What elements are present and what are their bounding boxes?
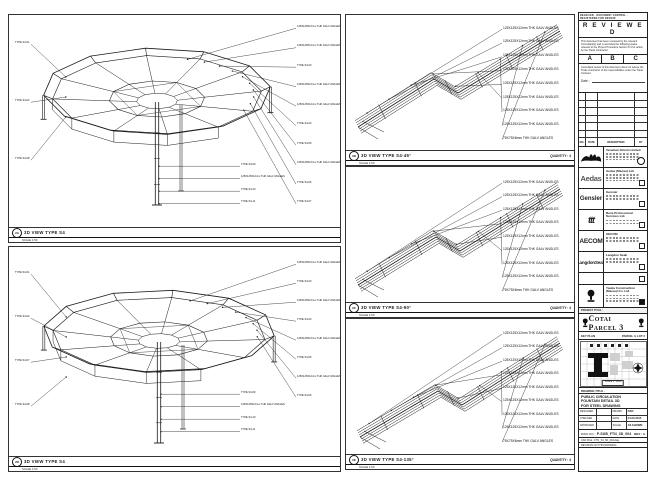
- revision-cell: [635, 131, 647, 139]
- callout-label: 125X125X12mm THK GALV ANGLES: [503, 332, 572, 336]
- trophy-icon: [579, 285, 604, 307]
- stakeholder-info: Aedas (Macau) Ltd.: [604, 168, 647, 188]
- review-checkbox: [639, 201, 646, 208]
- signoff-cell: -: [597, 409, 612, 416]
- reviewed-body-text: This document has been reviewed by the r…: [579, 38, 647, 54]
- panel-label-bar: 2C 3D VIEW TYPE S4-90° QUANTITY : 4 SCAL…: [346, 302, 574, 317]
- project-name: Cotai Parcel 3: [589, 314, 638, 332]
- callout-label: 125X125X12mm THK GALV ANGLES: [503, 96, 572, 100]
- callout-label: 125X125X12mm THK GALV ANGLES: [241, 404, 285, 407]
- callout-label: TYPE S4-11: [241, 429, 255, 432]
- panel-3d-view-s4-top: 125X125X12mm THK GALV ANGLES125X125X12mm…: [8, 14, 341, 243]
- scale-note: SCALE 1:50: [346, 313, 574, 317]
- review-checkbox: [639, 222, 646, 229]
- stakeholder-info: Gensler: [604, 189, 647, 209]
- stakeholder-row: LangdonSeahLangdon Seah: [579, 252, 647, 273]
- revision-value: REV : A: [634, 432, 645, 436]
- view-title: 3D VIEW TYPE S4-45°: [361, 153, 411, 158]
- grade-a: A: [579, 55, 602, 63]
- callout-label: TYPE S4-07: [297, 201, 339, 204]
- revision-cell: [598, 116, 635, 124]
- revision-cell: [598, 93, 635, 101]
- callout-label: 125X125X12mm THK GALV ANGLES: [503, 54, 572, 58]
- callout-label: TYPE S4-01: [15, 42, 29, 45]
- panel-3d-view-s4-90: 125X125X12mm THK GALV ANGLES125X125X12mm…: [345, 166, 575, 318]
- stakeholder-row: [579, 273, 647, 285]
- detail-bubble: 2A: [12, 228, 22, 238]
- callout-label: 125X125X12mm THK GALV ANGLES: [503, 386, 572, 390]
- address-microtext: [606, 220, 640, 222]
- stakeholder-row: Yauka Construction (Macau) Co. Ltd.: [579, 285, 647, 308]
- callout-label: TYPE S4-07: [15, 360, 29, 363]
- revision-footer-cell: DESCRIPTION: [598, 138, 635, 146]
- panel-3d-view-s4-45: 125X125X12mm THK GALV ANGLES125X125X12mm…: [345, 14, 575, 166]
- stamp-circle: [637, 157, 645, 165]
- ttt-logo: ttt: [579, 210, 604, 230]
- revision-cell: [635, 108, 647, 116]
- revision-cell: [579, 131, 586, 139]
- gensler-logo: Gensler: [579, 189, 604, 209]
- callout-label: 125X125X12mm THK GALV ANGLES: [503, 109, 572, 113]
- signoff-cell: SCALE: [612, 422, 627, 429]
- panel-label-bar: 2A 3D VIEW TYPE S4 SCALE 1:50: [9, 227, 340, 242]
- scale-note: SCALE 1:50: [9, 467, 340, 471]
- review-checkbox: [639, 276, 646, 283]
- logo-text: Gensler: [580, 196, 602, 202]
- signoff-table: DESIGNED-DRAWNDADCHECKED-DATE04-03-2015A…: [579, 409, 647, 430]
- revision-cell: [579, 101, 586, 109]
- address-microtext: [606, 153, 640, 155]
- signoff-cell: AS SHOWN: [627, 422, 647, 429]
- reviewed-note-text: Consultant review of this document does …: [579, 64, 647, 77]
- review-date-row: Date :: [579, 77, 647, 85]
- revision-cell: [586, 116, 598, 124]
- callout-label: 125X125X12mm THK GALV ANGLES: [297, 45, 339, 48]
- stakeholder-name: Aedas (Macau) Ltd.: [606, 170, 646, 174]
- callout-label: 125X125X12mm THK GALV ANGLES: [503, 345, 572, 349]
- callout-label: TYPE S4-05: [297, 357, 339, 360]
- review-checkbox: [639, 180, 646, 187]
- callout-label: TYPE S4-09: [241, 392, 255, 395]
- panel-label-bar: 2E 3D VIEW TYPE S4-135° QUANTITY : 4 SCA…: [346, 454, 574, 469]
- detail-bubble: 2B: [349, 151, 359, 161]
- stakeholder-row: AECOMAECOM: [579, 231, 647, 252]
- callout-label: TYPE S4-02: [15, 316, 29, 319]
- callout-label: 125X125X12mm THK GALV ANGLES: [503, 235, 572, 239]
- callout-label: 125X125X12mm THK GALV ANGLES: [503, 248, 572, 252]
- revision-cell: [586, 131, 598, 139]
- stakeholder-row: AedasAedas (Macau) Ltd.: [579, 168, 647, 189]
- revision-cell: [598, 101, 635, 109]
- venetian-lion-icon: [579, 147, 604, 167]
- view-title: 3D VIEW TYPE S4: [24, 230, 65, 235]
- panel-3d-view-s4-135: 125X125X12mm THK GALV ANGLES125X125X12mm…: [345, 318, 575, 470]
- callout-label: 125X125X12mm THK GALV ANGLES: [503, 27, 572, 31]
- view-title: 3D VIEW TYPE S4-135°: [361, 457, 414, 462]
- grade-c: C: [624, 55, 647, 63]
- callout-label: 125X125X12mm THK GALV ANGLES: [297, 262, 339, 265]
- revision-table: NO.DATEDESCRIPTIONBY: [579, 93, 647, 147]
- review-checkbox: [639, 243, 646, 250]
- date-line: [592, 78, 645, 83]
- address-microtext: [606, 261, 640, 263]
- stakeholder-info: Langdon Seah: [604, 252, 647, 272]
- scale-note: SCALE 1:50: [9, 238, 340, 242]
- logo-text: LangdonSeah: [579, 260, 604, 265]
- quantity-note: QUANTITY : 4: [550, 458, 571, 462]
- stakeholder-list: Venetian Orient LimitedAedasAedas (Macau…: [579, 147, 647, 308]
- revision-cell: [635, 116, 647, 124]
- revision-cell: [579, 108, 586, 116]
- callout-label: 125X125X12mm THK GALV ANGLES: [503, 359, 572, 363]
- callout-label: TYPE S4-06: [297, 182, 339, 185]
- angle-bundle-figure: 125X125X12mm THK GALV ANGLES125X125X12mm…: [346, 15, 574, 150]
- logo-text: Aedas: [580, 174, 601, 183]
- langdonseah-logo: LangdonSeah: [579, 252, 604, 272]
- revision-cell: [579, 116, 586, 124]
- revision-cell: [579, 123, 586, 131]
- callout-label: TYPE S4-06: [297, 395, 339, 398]
- callout-label: TYPE S4-02: [15, 100, 29, 103]
- key-plan-parcel-note: PARCEL 3, LOT 2: [622, 334, 645, 338]
- detail-bubble: 2C: [349, 303, 359, 313]
- review-grade-boxes: A B C: [579, 54, 647, 64]
- address-microtext: [606, 159, 640, 161]
- view-title: 3D VIEW TYPE S4: [24, 459, 65, 464]
- callout-label: 125X125X12mm THK GALV ANGLES: [503, 426, 572, 430]
- key-plan-label: KEY PLAN: [581, 334, 595, 338]
- callout-label: TYPE S4-04: [297, 319, 339, 322]
- address-microtext: [606, 237, 640, 239]
- callout-label: TYPE S4-01: [15, 272, 29, 275]
- revision-footer-cell: NO.: [579, 138, 586, 146]
- title-block-column: RECEIVED · DOCUMENT CONTROL · REGISTERED…: [578, 12, 648, 472]
- compass-icon: [633, 363, 643, 373]
- address-microtext: [606, 174, 640, 176]
- stakeholder-row: Venetian Orient Limited: [579, 147, 647, 168]
- callout-label: 125X125X12mm THK GALV ANGLES: [503, 399, 572, 403]
- quantity-note: QUANTITY : 4: [550, 306, 571, 310]
- callout-label: 125X125X12mm THK GALV ANGLES: [297, 338, 339, 341]
- callout-label: TYPE S4-04: [297, 123, 339, 126]
- stakeholder-name: Yauka Construction (Macau) Co. Ltd.: [606, 287, 646, 294]
- address-microtext: [606, 258, 640, 260]
- address-microtext: [606, 156, 640, 158]
- dwg-no-value: P-SUB_FTN_3D_004: [597, 432, 631, 436]
- callout-label: TYPE S4-05: [297, 143, 339, 146]
- address-microtext: [606, 300, 640, 302]
- grade-b: B: [602, 55, 625, 63]
- callout-label: 125X125X12mm THK GALV ANGLES: [503, 221, 572, 225]
- callout-label: 125X125X12mm THK GALV ANGLES: [503, 262, 572, 266]
- address-microtext: [606, 240, 640, 242]
- callout-label: 125X125X12mm THK GALV ANGLES: [503, 40, 572, 44]
- stakeholder-row: GenslerGensler: [579, 189, 647, 210]
- logo-text: AECOM: [579, 238, 602, 245]
- signoff-cell: DESIGNED: [579, 409, 597, 416]
- contractor-mark: [639, 299, 646, 306]
- signoff-cell: -: [597, 416, 612, 423]
- stakeholder-info: Beca Professional Services Ltd.: [604, 210, 647, 230]
- revision-cell: [598, 108, 635, 116]
- callout-label: 125X125X12mm THK GALV ANGLES: [503, 123, 572, 127]
- callout-label: 125X125X12mm THK GALV ANGLES: [503, 82, 572, 86]
- project-banner: Cotai Parcel 3: [579, 314, 647, 332]
- key-plan-header: KEY PLAN PARCEL 3, LOT 2: [579, 332, 647, 340]
- stakeholder-name: Beca Professional Services Ltd.: [606, 212, 646, 219]
- revision-cell: [635, 123, 647, 131]
- stakeholder-info: [604, 273, 647, 284]
- address-microtext: [606, 177, 640, 179]
- callout-label: TYPE S4-10: [241, 417, 255, 420]
- callout-label: 125X125X12mm THK GALV ANGLES: [503, 413, 572, 417]
- revision-cell: [598, 123, 635, 131]
- callout-label: TYPE S4-10: [241, 189, 255, 192]
- reviewed-stamp: R E V I E W E D This document has been r…: [579, 21, 647, 93]
- callout-label: 125X125X12mm THK GALV ANGLES: [297, 104, 339, 107]
- callout-label: TYPE S4-11: [241, 201, 255, 204]
- dome-wireframe-figure: 125X125X12mm THK GALV ANGLESTYPE S4-0312…: [9, 247, 340, 456]
- address-microtext: [606, 298, 640, 300]
- stakeholder-name: Venetian Orient Limited: [606, 149, 646, 153]
- signoff-cell: DAD: [627, 409, 647, 416]
- key-plan-map: SCALE 1 : 2000: [579, 340, 647, 388]
- callout-label: 125X125X12mm THK GALV ANGLES: [503, 194, 572, 198]
- revision-cell: [635, 101, 647, 109]
- detail-bubble: 2D: [12, 457, 22, 467]
- callout-label: 125X125X12mm THK GALV ANGLES: [297, 84, 339, 87]
- address-microtext: [606, 180, 640, 182]
- callout-label: TYPE S4-03: [297, 65, 339, 68]
- callout-label: 125X125X12mm THK GALV ANGLES: [297, 162, 339, 165]
- revision-cell: [586, 101, 598, 109]
- stakeholder-info: Yauka Construction (Macau) Co. Ltd.: [604, 285, 647, 307]
- reviewed-title: R E V I E W E D: [579, 21, 647, 38]
- stakeholder-row: tttBeca Professional Services Ltd.: [579, 210, 647, 231]
- callout-label: 75X75X6mm THK GALV ANGLES: [503, 440, 572, 444]
- drawing-title: PUBLIC CIRCULATION FOUNTAIN DETAIL 3D FO…: [579, 394, 647, 409]
- callout-label: TYPE S4-03: [297, 281, 339, 284]
- callout-label: TYPE S4-09: [241, 164, 255, 167]
- address-microtext: [606, 195, 640, 197]
- callout-label: 125X125X12mm THK GALV ANGLES: [241, 176, 285, 179]
- review-checkbox: [639, 264, 646, 271]
- address-microtext: [606, 198, 640, 200]
- callout-label: 125X125X12mm THK GALV ANGLES: [503, 372, 572, 376]
- document-control-strip: RECEIVED · DOCUMENT CONTROL · REGISTERED…: [579, 13, 647, 21]
- trophy-icon: [638, 317, 645, 329]
- address-microtext: [606, 295, 640, 297]
- dome-wireframe-figure: 125X125X12mm THK GALV ANGLES125X125X12mm…: [9, 15, 340, 227]
- callout-label: TYPE S4-08: [15, 404, 29, 407]
- callout-label: 125X125X12mm THK GALV ANGLES: [297, 26, 339, 29]
- signoff-cell: DATE: [612, 416, 627, 423]
- signoff-cell: APPROVED: [579, 422, 597, 429]
- panel-3d-view-s4-bottom: 125X125X12mm THK GALV ANGLESTYPE S4-0312…: [8, 246, 341, 472]
- callout-label: 125X125X12mm THK GALV ANGLES: [503, 68, 572, 72]
- view-title: 3D VIEW TYPE S4-90°: [361, 305, 411, 310]
- stakeholder-name: AECOM: [606, 233, 646, 237]
- drawing-number-row: DWG NO : P-SUB_FTN_3D_004 REV : A: [579, 430, 647, 438]
- revision-footer-cell: BY: [635, 138, 647, 146]
- revision-cell: [586, 108, 598, 116]
- callout-label: TYPE S4-08: [15, 158, 29, 161]
- detail-bubble: 2E: [349, 455, 359, 465]
- revision-footer-cell: DATE: [586, 138, 598, 146]
- callout-label: 125X125X12mm THK GALV ANGLES: [503, 181, 572, 185]
- revision-cell: [586, 93, 598, 101]
- drawing-sheet: 125X125X12mm THK GALV ANGLES125X125X12mm…: [0, 0, 650, 488]
- revision-cell: [586, 123, 598, 131]
- quantity-note: QUANTITY : 4: [550, 154, 571, 158]
- revision-cell: [579, 93, 586, 101]
- stakeholder-info: AECOM: [604, 231, 647, 251]
- logo-text: ttt: [588, 215, 594, 225]
- signoff-cell: CHECKED: [579, 416, 597, 423]
- aecom-logo: AECOM: [579, 231, 604, 251]
- stakeholder-name: Langdon Seah: [606, 254, 646, 258]
- panel-label-bar: 2D 3D VIEW TYPE S4 SCALE 1:50: [9, 456, 340, 471]
- angle-bundle-figure: 125X125X12mm THK GALV ANGLES125X125X12mm…: [346, 319, 574, 454]
- stakeholder-info: Venetian Orient Limited: [604, 147, 647, 167]
- callout-label: 125X125X12mm THK GALV ANGLES: [297, 300, 339, 303]
- aedas-logo: Aedas: [579, 168, 604, 188]
- date-label: Date :: [581, 79, 590, 83]
- dwg-no-label: DWG NO :: [581, 432, 595, 436]
- revision-cell: [598, 131, 635, 139]
- signoff-cell: 04-03-2015: [627, 416, 647, 423]
- empty-logo-cell: [579, 273, 604, 284]
- callout-label: 75X75X6mm THK GALV ANGLES: [503, 289, 572, 293]
- panel-label-bar: 2B 3D VIEW TYPE S4-45° QUANTITY : 4 SCAL…: [346, 150, 574, 165]
- callout-label: 75X75X6mm THK GALV ANGLES: [503, 137, 572, 141]
- scale-note: SCALE 1:50: [346, 161, 574, 165]
- callout-label: 125X125X12mm THK GALV ANGLES: [297, 376, 339, 379]
- title-block-spacer: [579, 448, 647, 471]
- signoff-cell: -: [597, 422, 612, 429]
- scale-note: SCALE 1:50: [346, 465, 574, 469]
- revision-cell: [635, 93, 647, 101]
- signoff-cell: DRAWN: [612, 409, 627, 416]
- stakeholder-name: Gensler: [606, 191, 646, 195]
- callout-label: 125X125X12mm THK GALV ANGLES: [503, 275, 572, 279]
- address-microtext: [606, 223, 640, 225]
- callout-label: 125X125X12mm THK GALV ANGLES: [503, 208, 572, 212]
- key-plan-scale: SCALE 1 : 2000: [602, 380, 624, 386]
- angle-bundle-figure: 125X125X12mm THK GALV ANGLES125X125X12mm…: [346, 167, 574, 302]
